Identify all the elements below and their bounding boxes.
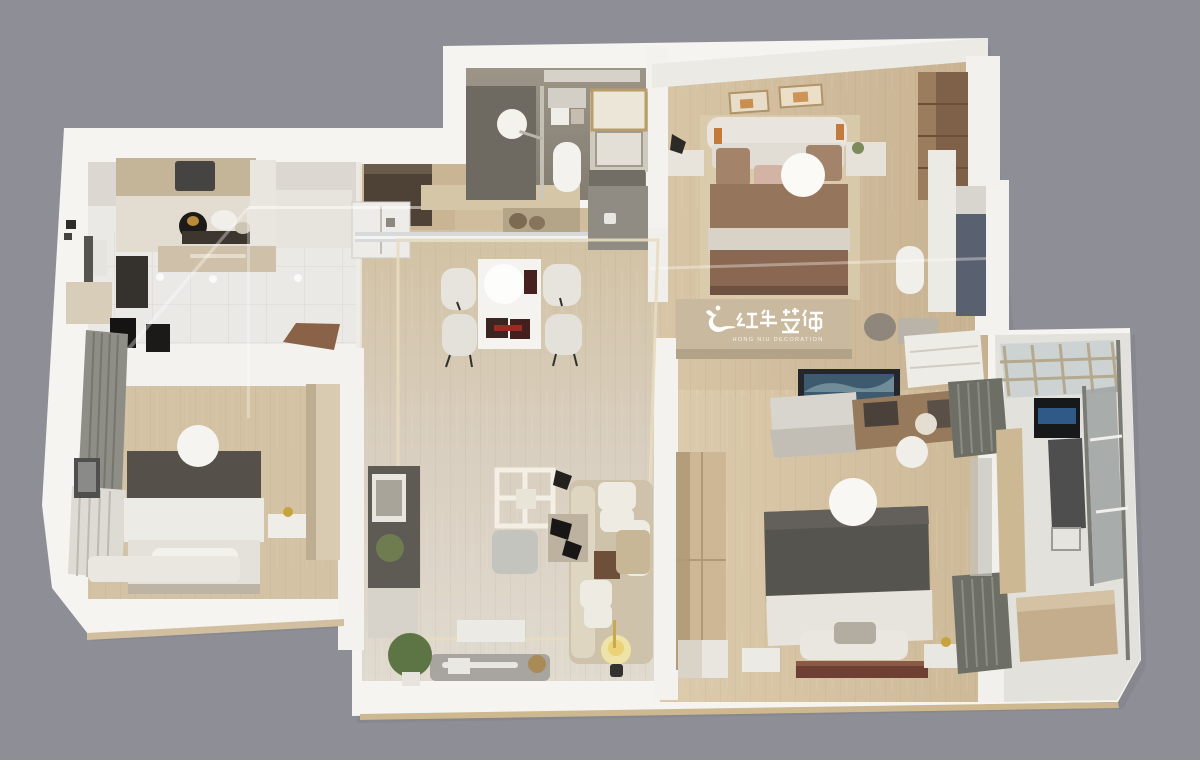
svg-text:HONG NIU DECORATION: HONG NIU DECORATION	[732, 337, 823, 343]
